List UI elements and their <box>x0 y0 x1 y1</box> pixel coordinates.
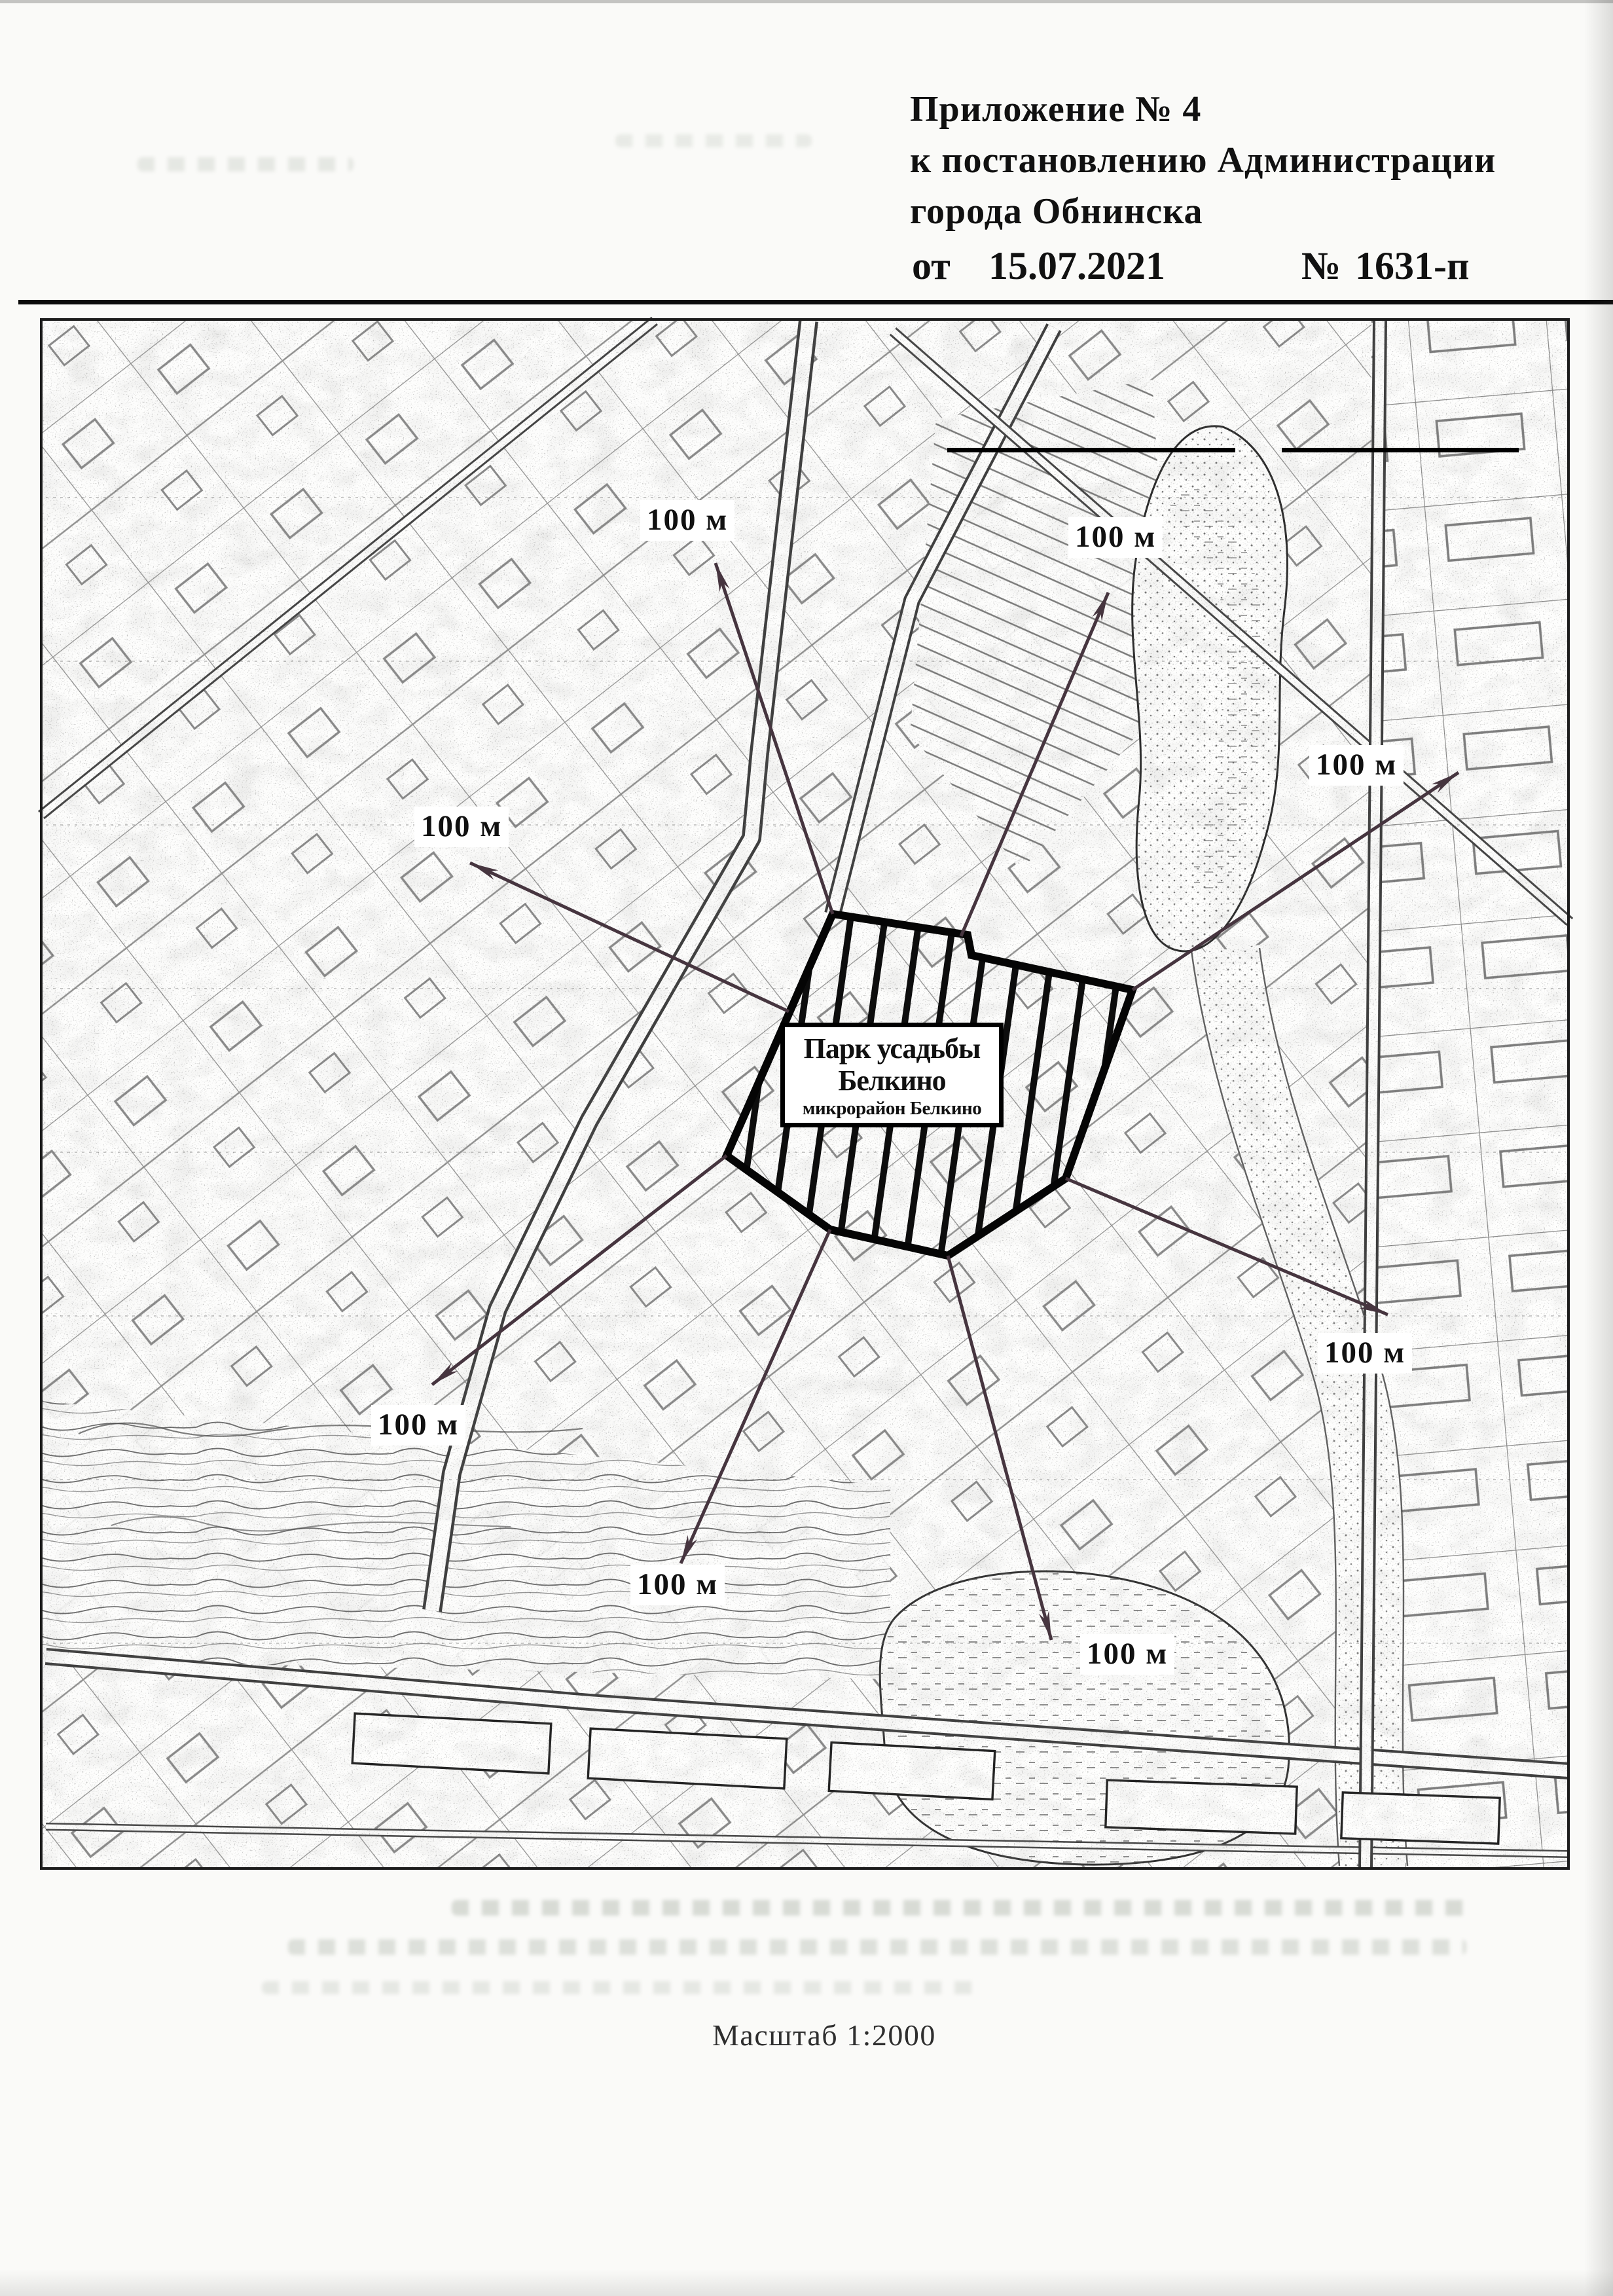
site-name-line2: Белкино <box>785 1065 999 1097</box>
resolution-date: 15.07.2021 <box>988 244 1165 289</box>
appendix-header: Приложение № 4 к постановлению Администр… <box>910 84 1578 237</box>
appendix-subtitle: к постановлению Администрации <box>910 135 1578 186</box>
date-underline <box>947 448 1235 452</box>
distance-label-left: 100 м <box>414 807 509 847</box>
scan-edge-right <box>1584 0 1613 2296</box>
distance-label-top-middle: 100 м <box>1068 517 1163 558</box>
scale-caption: Масштаб 1:2000 <box>712 2018 936 2052</box>
distance-label-right-upper: 100 м <box>1309 745 1404 786</box>
number-underline <box>1282 448 1519 452</box>
bleedthrough-smudge <box>262 1981 982 1994</box>
resolution-number: 1631-п <box>1355 244 1470 289</box>
distance-label-top-left: 100 м <box>640 500 734 541</box>
scanned-document-page: Приложение № 4 к постановлению Администр… <box>0 0 1613 2296</box>
scan-edge-bottom <box>0 2270 1613 2296</box>
site-name-line1: Парк усадьбы <box>785 1032 999 1065</box>
bleedthrough-smudge <box>137 157 353 172</box>
number-sign: № <box>1301 244 1341 289</box>
bleedthrough-smudge <box>452 1900 1473 1916</box>
header-separator-line <box>18 300 1613 304</box>
distance-label-bottom-mid: 100 м <box>630 1565 725 1605</box>
distance-label-lower-left: 100 м <box>371 1405 465 1446</box>
site-district: микрорайон Белкино <box>785 1097 999 1120</box>
distance-label-bottom: 100 м <box>1080 1634 1174 1675</box>
resolution-line: от 15.07.2021 № 1631-п <box>910 244 1578 302</box>
distance-label-right-lower: 100 м <box>1318 1333 1412 1374</box>
bleedthrough-smudge <box>288 1939 1466 1955</box>
from-label: от <box>912 244 951 289</box>
appendix-city: города Обнинска <box>910 186 1578 237</box>
bleedthrough-smudge <box>615 134 812 147</box>
site-label-box: Парк усадьбы Белкино микрорайон Белкино <box>780 1023 1004 1127</box>
appendix-title: Приложение № 4 <box>910 84 1578 135</box>
